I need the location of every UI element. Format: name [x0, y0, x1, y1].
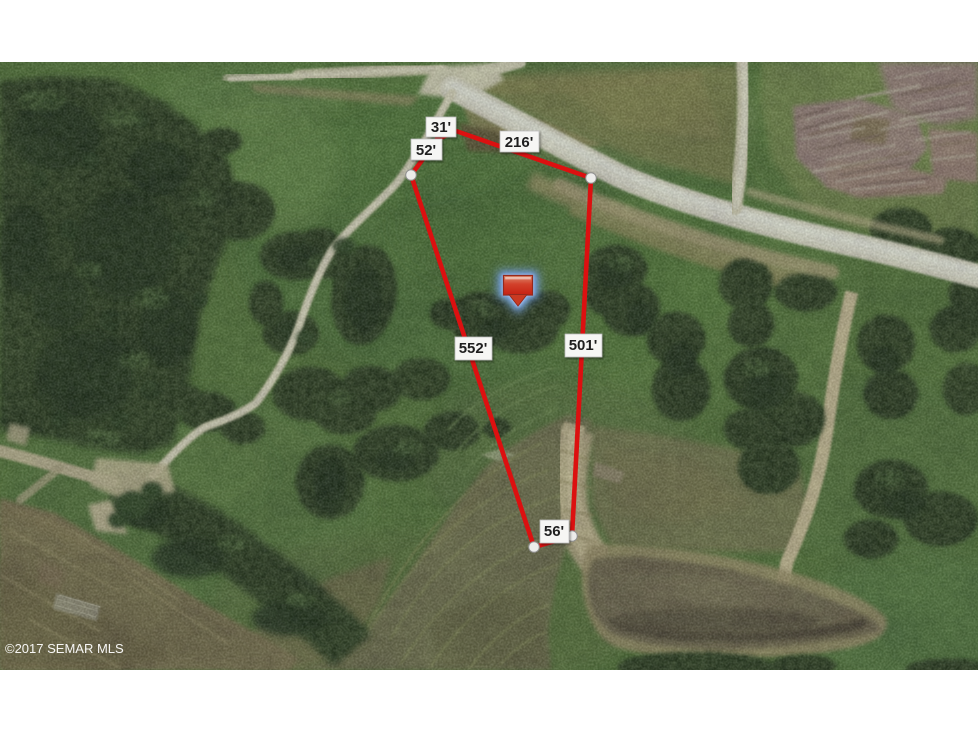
svg-text:56': 56' [544, 523, 564, 540]
svg-text:52': 52' [416, 142, 436, 159]
svg-text:31': 31' [431, 119, 451, 136]
svg-text:216': 216' [505, 134, 534, 151]
svg-text:©2017 SEMAR MLS: ©2017 SEMAR MLS [5, 641, 124, 656]
svg-text:552': 552' [459, 340, 488, 357]
svg-text:501': 501' [569, 337, 598, 354]
